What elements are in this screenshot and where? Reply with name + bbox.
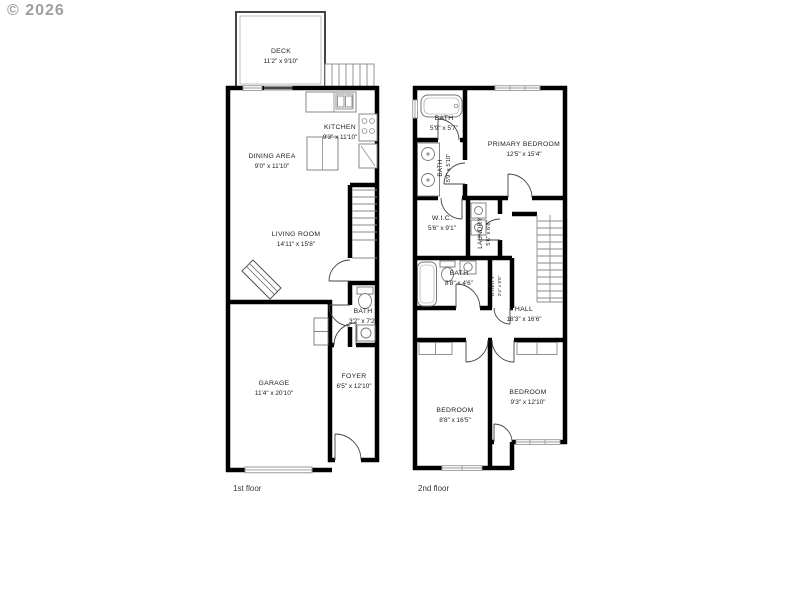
window [516, 440, 560, 445]
garage-door [245, 467, 312, 473]
room-label-bedroom-right: BEDROOM 9'3" x 12'10" [468, 388, 588, 407]
room-label-kitchen: KITCHEN 9'3" x 11'10" [280, 123, 400, 142]
staircase [537, 215, 563, 302]
room-label-deck: DECK 11'2" x 9'10" [221, 47, 341, 66]
second-floor-caption: 2nd floor [418, 484, 449, 493]
window [442, 466, 482, 471]
door-swing [329, 260, 361, 460]
room-label-hall: HALL 18'3" x 16'6" [464, 305, 584, 324]
closet [419, 343, 452, 355]
room-label-bedroom-left: BEDROOM 8'8" x 16'5" [395, 406, 515, 425]
fridge-icon [359, 144, 377, 168]
room-label-dining-area: DINING AREA 9'0" x 11'10" [212, 152, 332, 171]
room-label-foyer: FOYER 6'5" x 12'10" [294, 372, 414, 391]
first-floor-caption: 1st floor [233, 484, 261, 493]
window [243, 86, 262, 91]
closet [517, 343, 557, 355]
room-label-bath-upper: BATH 5'9" x 5'7" [384, 114, 504, 133]
kitchen-sink-icon [336, 94, 353, 109]
room-label-living-room: LIVING ROOM 14'11" x 15'8" [236, 230, 356, 249]
window [495, 86, 540, 91]
fireplace-icon [242, 260, 281, 299]
deck-stairs [325, 64, 374, 88]
room-label-primary-bedroom: PRIMARY BEDROOM 12'5" x 15'4" [464, 140, 584, 159]
floor-plan-drawing [0, 0, 800, 600]
room-label-bath-1f: BATH 3'2" x 7'2" [303, 307, 423, 326]
sink-icon [357, 325, 375, 341]
toilet-icon [357, 287, 373, 309]
first-floor-walls [226, 86, 379, 472]
room-label-bath-vanity: BATH 5'9" x 5'10" [437, 133, 457, 203]
floor-plan-canvas: © 2026 [0, 0, 800, 600]
